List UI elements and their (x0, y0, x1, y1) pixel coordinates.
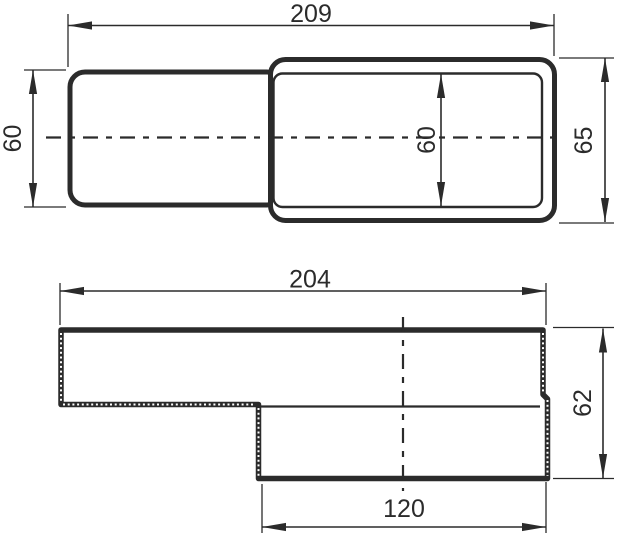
arrowhead-right-icon (522, 523, 546, 531)
arrowhead-up-icon (599, 329, 607, 353)
dim-label-inlet-height: 60 (0, 125, 27, 153)
arrowhead-left-icon (68, 21, 92, 29)
dim-label-body-length: 204 (289, 266, 331, 294)
inlet-duct-outline (70, 72, 282, 205)
dim-label-offset-length: 120 (383, 495, 425, 523)
arrowhead-right-icon (530, 21, 554, 29)
arrowhead-up-icon (601, 58, 609, 82)
dim-label-total-height: 62 (569, 389, 597, 417)
arrowhead-up-icon (29, 70, 37, 94)
top-view: 209 60 60 65 (0, 0, 614, 223)
arrowhead-left-icon (60, 287, 84, 295)
arrowhead-right-icon (522, 287, 546, 295)
arrowhead-down-icon (29, 183, 37, 207)
drawing-canvas: 209 60 60 65 (0, 0, 618, 536)
side-view: 204 62 120 (60, 266, 614, 534)
arrowhead-left-icon (262, 523, 286, 531)
drawing-sheet: 209 60 60 65 (0, 0, 618, 536)
arrowhead-down-icon (599, 454, 607, 478)
dim-label-inner-height: 60 (413, 126, 441, 154)
dim-label-total-length: 209 (290, 0, 332, 28)
dim-label-outlet-height: 65 (570, 127, 598, 155)
arrowhead-down-icon (601, 198, 609, 222)
